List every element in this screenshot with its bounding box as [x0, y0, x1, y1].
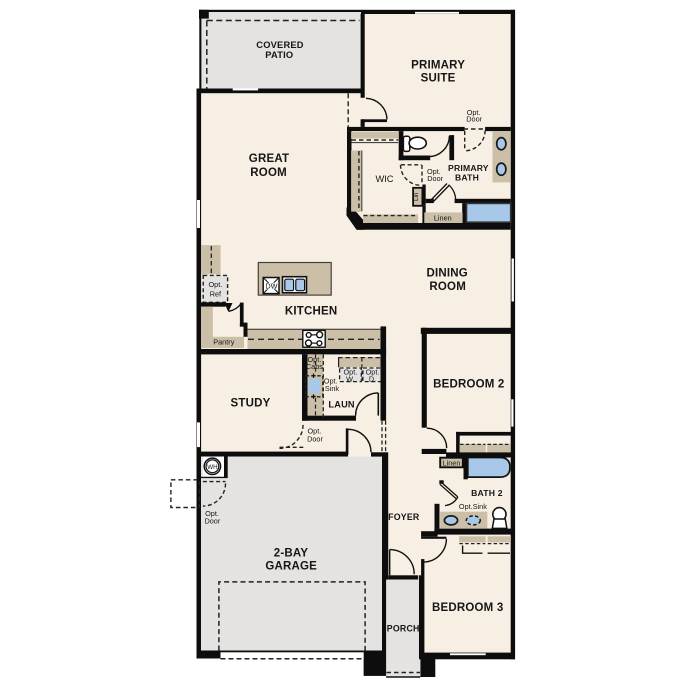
- svg-text:BEDROOM 2: BEDROOM 2: [433, 378, 504, 390]
- svg-text:STUDY: STUDY: [231, 398, 271, 410]
- svg-text:PATIO: PATIO: [265, 50, 293, 60]
- svg-text:KITCHEN: KITCHEN: [285, 306, 338, 318]
- svg-text:Pantry: Pantry: [213, 338, 234, 347]
- svg-text:WIC: WIC: [375, 174, 393, 184]
- svg-text:PRIMARY: PRIMARY: [411, 59, 465, 71]
- svg-text:BATH 2: BATH 2: [471, 488, 503, 498]
- svg-text:Door: Door: [307, 435, 323, 444]
- svg-text:DW: DW: [265, 281, 277, 290]
- svg-text:D.: D.: [369, 375, 376, 384]
- svg-text:Linen: Linen: [434, 213, 452, 222]
- svg-text:Linen: Linen: [443, 459, 461, 468]
- svg-text:Ref: Ref: [210, 290, 222, 299]
- svg-text:Opt.Sink: Opt.Sink: [459, 502, 487, 511]
- svg-text:BEDROOM 3: BEDROOM 3: [432, 602, 503, 614]
- svg-text:GARAGE: GARAGE: [265, 561, 317, 573]
- svg-text:Cabs: Cabs: [306, 362, 323, 371]
- svg-text:Door: Door: [204, 516, 220, 525]
- svg-text:FOYER: FOYER: [388, 512, 420, 522]
- svg-text:Lin: Lin: [413, 192, 420, 201]
- svg-text:Door: Door: [427, 174, 443, 183]
- svg-text:GREAT: GREAT: [249, 153, 289, 165]
- svg-text:DINING: DINING: [426, 267, 467, 279]
- svg-text:W.: W.: [346, 375, 355, 384]
- svg-text:SUITE: SUITE: [421, 72, 456, 84]
- svg-text:2-BAY: 2-BAY: [274, 548, 309, 560]
- svg-text:WH: WH: [207, 464, 217, 471]
- svg-text:PORCH: PORCH: [387, 624, 420, 634]
- svg-text:ROOM: ROOM: [429, 281, 466, 293]
- svg-text:COVERED: COVERED: [256, 40, 303, 50]
- svg-text:Sink: Sink: [325, 384, 340, 393]
- svg-text:Door: Door: [466, 115, 482, 124]
- svg-text:LAUN: LAUN: [328, 399, 354, 409]
- svg-text:ROOM: ROOM: [250, 167, 287, 179]
- svg-text:BATH: BATH: [455, 173, 479, 183]
- svg-text:Opt.: Opt.: [209, 280, 223, 289]
